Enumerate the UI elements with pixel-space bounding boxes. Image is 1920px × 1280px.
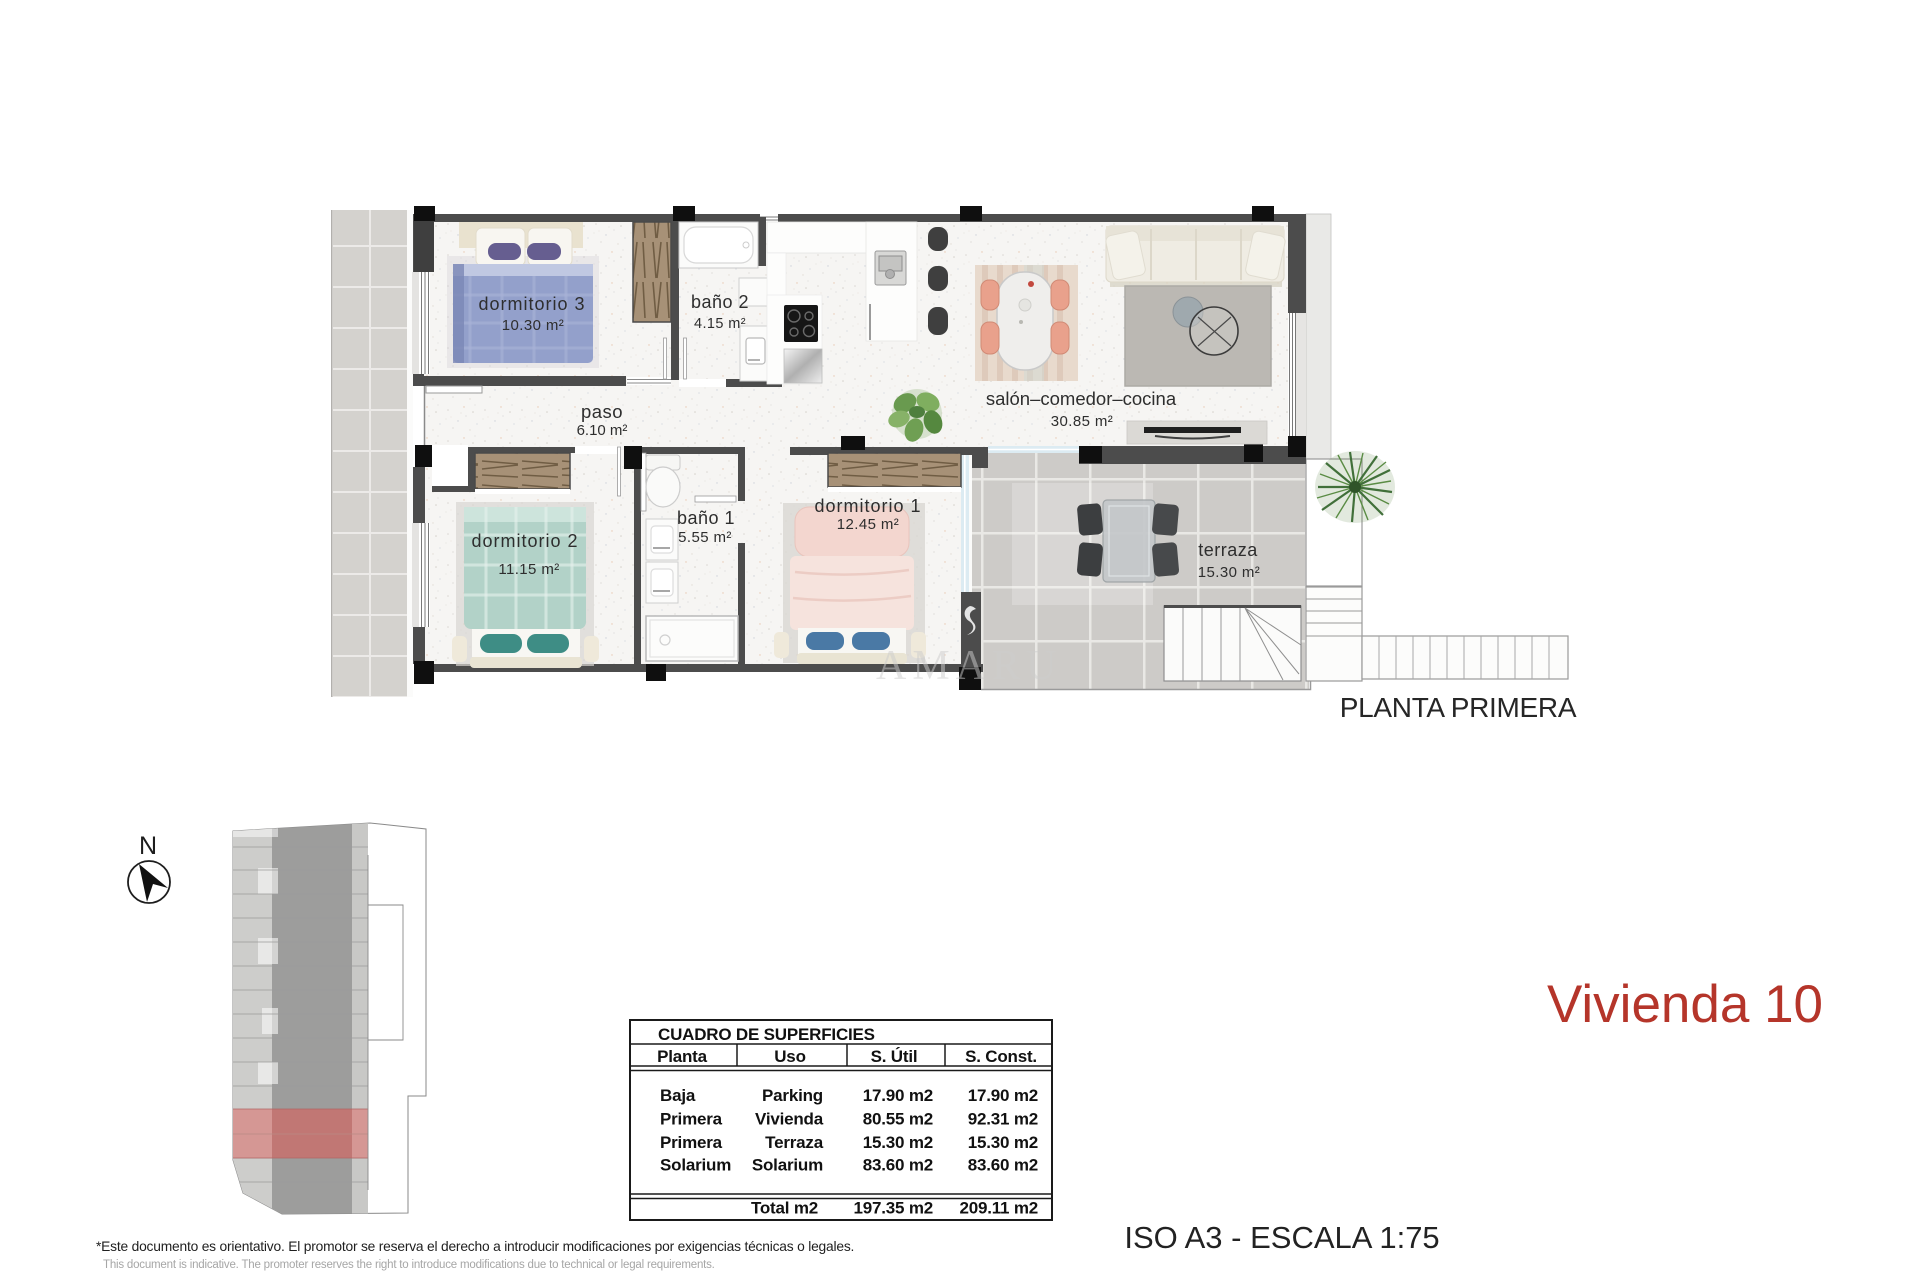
svg-text:paso: paso: [581, 401, 623, 422]
svg-text:5.55 m²: 5.55 m²: [678, 529, 732, 546]
svg-text:This document is indicative. T: This document is indicative. The promote…: [103, 1259, 715, 1271]
svg-text:Vivienda: Vivienda: [755, 1110, 824, 1129]
svg-text:12.45 m²: 12.45 m²: [837, 516, 899, 533]
svg-text:S. Útil: S. Útil: [871, 1047, 918, 1066]
svg-text:30.85 m²: 30.85 m²: [1051, 413, 1113, 430]
svg-text:baño 2: baño 2: [691, 292, 749, 312]
svg-text:11.15 m²: 11.15 m²: [498, 561, 559, 578]
svg-text:Total m2: Total m2: [751, 1199, 818, 1218]
svg-text:10.30 m²: 10.30 m²: [502, 317, 564, 334]
svg-text:209.11 m2: 209.11 m2: [959, 1199, 1038, 1218]
svg-text:Solarium: Solarium: [660, 1156, 731, 1175]
svg-text:terraza: terraza: [1198, 540, 1258, 560]
svg-text:Uso: Uso: [774, 1047, 806, 1066]
svg-text:Terraza: Terraza: [765, 1133, 824, 1152]
svg-text:83.60 m2: 83.60 m2: [863, 1156, 933, 1175]
svg-text:salón–comedor–cocina: salón–comedor–cocina: [986, 388, 1177, 409]
svg-text:N: N: [139, 832, 157, 860]
svg-text:Parking: Parking: [762, 1086, 823, 1105]
svg-text:Vivienda 10: Vivienda 10: [1547, 975, 1823, 1034]
svg-text:Primera: Primera: [660, 1133, 723, 1152]
svg-text:CUADRO DE SUPERFICIES: CUADRO DE SUPERFICIES: [658, 1025, 875, 1044]
svg-text:S. Const.: S. Const.: [965, 1047, 1037, 1066]
svg-text:15.30 m2: 15.30 m2: [968, 1133, 1038, 1152]
svg-text:15.30 m2: 15.30 m2: [863, 1133, 933, 1152]
svg-text:AMARU: AMARU: [876, 643, 1062, 689]
svg-text:80.55 m2: 80.55 m2: [863, 1110, 933, 1129]
svg-text:92.31 m2: 92.31 m2: [968, 1110, 1038, 1129]
svg-text:17.90 m2: 17.90 m2: [968, 1086, 1038, 1105]
svg-text:baño 1: baño 1: [677, 508, 735, 528]
svg-text:83.60 m2: 83.60 m2: [968, 1156, 1038, 1175]
svg-text:Baja: Baja: [660, 1086, 696, 1105]
svg-text:PLANTA PRIMERA: PLANTA PRIMERA: [1340, 692, 1577, 723]
svg-text:ISO A3 - ESCALA 1:75: ISO A3 - ESCALA 1:75: [1124, 1220, 1439, 1255]
svg-text:Planta: Planta: [657, 1047, 708, 1066]
svg-text:197.35 m2: 197.35 m2: [854, 1199, 934, 1218]
svg-text:17.90 m2: 17.90 m2: [863, 1086, 933, 1105]
svg-text:dormitorio 2: dormitorio 2: [471, 531, 578, 551]
svg-text:Solarium: Solarium: [752, 1156, 823, 1175]
svg-text:15.30 m²: 15.30 m²: [1198, 564, 1260, 581]
svg-text:4.15 m²: 4.15 m²: [694, 316, 746, 332]
svg-text:dormitorio 1: dormitorio 1: [814, 496, 921, 516]
svg-text:6.10 m²: 6.10 m²: [577, 422, 628, 439]
svg-text:dormitorio 3: dormitorio 3: [478, 294, 585, 314]
svg-text:Primera: Primera: [660, 1110, 723, 1129]
svg-text:*Este documento es orientativo: *Este documento es orientativo. El promo…: [96, 1239, 854, 1254]
